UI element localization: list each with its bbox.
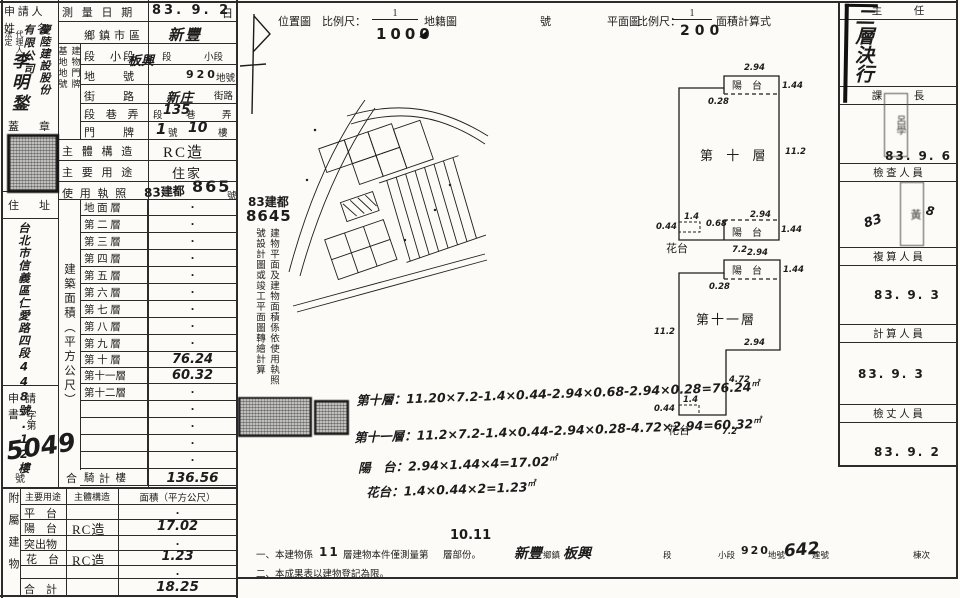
dim-label: 11.2 — [654, 327, 675, 337]
applicant-seal-stamp — [7, 134, 59, 193]
table-row: 第 九 層· — [80, 335, 237, 352]
dim-label: 2.94 — [750, 210, 771, 220]
legal-label: 法定 — [3, 30, 14, 54]
scale-label: 比例尺： — [322, 13, 366, 29]
base-land-label: 基地地號 — [57, 46, 70, 90]
grid-line — [2, 218, 58, 219]
dim-label: 1.4 — [683, 395, 698, 405]
table-row: 第十一層60.32 — [80, 368, 237, 384]
attached-structure-header: 主體構造 — [66, 489, 118, 504]
door-no-suffix: 號 — [168, 125, 178, 139]
inspector-date-scribble: 8 — [925, 203, 936, 218]
table-row: 第 二 層· — [80, 216, 237, 233]
subsection-suffix: 小段 — [204, 49, 223, 63]
floor-value: · — [148, 435, 237, 451]
floor-label: 第十二層 — [80, 384, 148, 400]
balcony-label: 陽 台 — [732, 79, 762, 92]
note1-land-no: 920 — [741, 544, 770, 557]
calc-line-balcony: 陽 台：2.94×1.44×4=17.02㎡ — [358, 451, 558, 477]
floor-value: · — [148, 452, 237, 468]
floor-label — [80, 452, 148, 468]
note1-prefix: 一、本建物係 — [256, 547, 313, 561]
note1-building-label: 建號 — [812, 549, 829, 561]
dim-label: 11.2 — [785, 147, 806, 157]
use-label: 主 要 用 途 — [62, 164, 135, 180]
attached-total-value: 18.25 — [118, 579, 237, 595]
address-label-char: 住 — [8, 197, 19, 213]
floor-label: 第十一層 — [80, 368, 148, 383]
note1-section-label: 段 — [663, 549, 672, 561]
flowerbed-label: 花台 — [668, 423, 690, 437]
dim-label: 2.94 — [744, 338, 765, 348]
table-row: 地 面 層· — [80, 199, 237, 216]
north-arrow-icon — [240, 8, 274, 118]
structure-value: RC造 — [163, 141, 204, 162]
dim-label: 2.94 — [747, 248, 768, 258]
dim-label: 4.72 — [728, 375, 750, 385]
permit-note-col2: 號設計圖或竣工平面圖轉繪計算 — [252, 228, 266, 386]
floor-label: 第 六 層 — [80, 284, 148, 300]
plan-map-label: 平面圖 — [607, 13, 640, 29]
office-seal-stamp — [238, 397, 312, 437]
approver-title-rechecker: 複 算 人 員 — [840, 247, 956, 266]
attached-building-label: 附屬建物 — [5, 492, 21, 594]
floor-label: 地 面 層 — [80, 199, 148, 215]
grid-line — [58, 21, 237, 22]
table-row: · — [80, 452, 237, 469]
floor-plan-title: 第 十 層 — [700, 148, 771, 163]
street-suffix: 街路 — [214, 88, 233, 102]
company-name-col1: 慶陸建設股份 — [36, 24, 52, 96]
sign-space: 呂學 83. 9. 6 — [840, 105, 956, 163]
sqm-unit: ㎡ — [527, 479, 535, 488]
table-row: 第十二層· — [80, 384, 237, 401]
floor-label: 第 五 層 — [80, 267, 148, 283]
floor-value: · — [148, 301, 237, 317]
balcony-label: 陽 台 — [732, 264, 762, 277]
attached-row-use: 突出物 — [24, 536, 57, 552]
table-row: 第 五 層· — [80, 267, 237, 284]
note2-text: 二、本成果表以建物登記為限。 — [256, 566, 389, 580]
attached-row-structure: RC造 — [72, 550, 105, 569]
address-label: 住 址 — [8, 197, 50, 213]
approval-handwritten-note: 二層決行 — [843, 4, 878, 104]
scale-numerator: 1 — [372, 8, 418, 20]
permit-note-text: 建物平面及建物面積係依使用執照 號設計圖或竣工平面圖轉繪計算 — [252, 228, 280, 386]
permit-note-number: 8645 — [246, 207, 292, 225]
sqm-unit: ㎡ — [549, 453, 557, 462]
floor-label: 第 四 層 — [80, 250, 148, 266]
floor-label: 第 二 層 — [80, 216, 148, 232]
floor-label — [80, 435, 148, 451]
approver-title-inspector: 檢 查 人 員 — [840, 163, 956, 182]
total-label: 合 計 — [58, 470, 148, 486]
dim-label: 0.28 — [709, 282, 730, 292]
permit-note-col1: 建物平面及建物面積係依使用執照 — [266, 228, 280, 386]
street-label: 街 路 — [84, 88, 136, 104]
note1-mid: 層建物本件僅測量第 — [343, 547, 429, 561]
dim-label: 1.44 — [782, 81, 803, 91]
building-door-label: 建物門牌 — [70, 46, 83, 90]
town-label: 鄉鎮市區 — [84, 27, 144, 43]
measured-floors-handwritten: 10.11 — [450, 528, 491, 543]
cadastre-no-label: 號 — [540, 13, 551, 29]
note1-unit-label: 棟次 — [913, 549, 930, 561]
applicant-address: 台北市信義區仁愛路四段448號.12樓 — [16, 222, 32, 382]
floor-label: 第 九 層 — [80, 335, 148, 351]
floor-label — [80, 418, 148, 434]
grid-line — [66, 489, 67, 596]
balcony-area-value: 17.02 — [118, 519, 237, 534]
seal-label: 蓋 章 — [8, 118, 50, 134]
attached-row-structure: RC造 — [72, 519, 105, 538]
door-number: 1 — [156, 120, 166, 138]
balcony-label: 陽 台 — [732, 226, 762, 239]
section-suffix: 段 — [162, 49, 172, 63]
seal-label-char: 章 — [39, 118, 50, 134]
approver-title-surveyor: 檢 丈 人 員 — [840, 404, 956, 423]
table-row: 第 六 層· — [80, 284, 237, 301]
calculator-date: 83. 9. 3 — [858, 367, 925, 381]
dim-label: 2.94 — [744, 63, 765, 73]
floor-value: · — [148, 384, 237, 400]
floor-value: · — [148, 250, 237, 266]
floor-area-table: 地 面 層· 第 二 層· 第 三 層· 第 四 層· 第 五 層· 第 六 層… — [80, 199, 237, 470]
docno-suffix: 號 — [15, 470, 25, 485]
table-row: 第 四 層· — [80, 250, 237, 267]
note1-section-value: 板興 — [563, 543, 591, 563]
dim-label: 0.44 — [654, 404, 675, 414]
inspector-date-scribble: 83 — [862, 212, 884, 232]
floor-value: · — [148, 233, 237, 249]
attached-use-header: 主要用途 — [20, 489, 66, 504]
floor-value: · — [148, 284, 237, 300]
table-row: · — [80, 401, 237, 418]
sign-space: 83. 9. 3 — [840, 266, 956, 324]
floor-number: 10 — [188, 120, 207, 136]
floor-value: · — [148, 418, 237, 434]
lane-suffix: 巷 — [186, 107, 196, 121]
table-row: 第 十 層76.24 — [80, 352, 237, 368]
chief-date: 83. 9. 6 — [885, 149, 952, 163]
dim-label: 0.44 — [656, 222, 677, 232]
base-building-col: 基地地號 建物門牌 — [60, 46, 79, 90]
dim-label: 1.4 — [684, 212, 699, 222]
attached-row-use: 花 台 — [26, 551, 59, 567]
dim-label: 7.2 — [722, 427, 737, 437]
floor-label: 第 十 層 — [80, 352, 148, 367]
floor-label: 第 七 層 — [80, 301, 148, 317]
sign-space: 83. 9. 2 — [840, 423, 956, 475]
floor-plan-title: 第十一層 — [696, 312, 756, 327]
alley-suffix: 弄 — [222, 107, 232, 121]
town-value: 新豐 — [168, 24, 202, 45]
permit-number: 865 — [192, 177, 231, 196]
floor-11-area: 60.32 — [148, 368, 237, 383]
flowerbed-area-value: 1.23 — [118, 549, 237, 564]
grid-line — [80, 64, 237, 65]
applicant-name: 李明鍫 — [6, 52, 31, 115]
door-label: 門 牌 — [84, 124, 136, 140]
docno-prefix: 字第 — [22, 410, 37, 430]
sign-space: 黃 83 8 — [840, 182, 956, 247]
survey-date-label: 測 量 日 期 — [62, 4, 144, 20]
dim-label: 1.44 — [781, 225, 802, 235]
floor-suffix: 樓 — [218, 125, 228, 139]
dim-label: 0.28 — [708, 97, 729, 107]
floor-plan-11f: 2.94 1.44 0.28 陽 台 第十一層 11.2 2.94 4.72 1… — [640, 246, 810, 446]
note1-town-value: 新豐 — [514, 543, 542, 563]
floor-10-area: 76.24 — [148, 352, 237, 367]
survey-result-form: 申 請 人 姓 名 法定 代理人 慶陸建設股份 有限公司 李明鍫 蓋 章 住 址… — [0, 0, 960, 598]
cadastral-sketch — [285, 90, 490, 318]
table-row: 第 八 層· — [80, 318, 237, 335]
floor-value: · — [148, 335, 237, 351]
floor-label: 第 三 層 — [80, 233, 148, 249]
note1-town-label: 鄉鎮 — [543, 549, 560, 561]
inspector-name-stamp: 黃 — [900, 182, 924, 246]
floor-total-row: 合 計 136.56 — [58, 470, 237, 486]
floor-value: · — [148, 216, 237, 232]
location-map-label: 位置圖 — [278, 13, 311, 29]
scale-numerator: 1 — [672, 8, 712, 20]
dim-label: 1.44 — [783, 265, 804, 275]
border-right — [956, 0, 958, 578]
note1-subsection-label: 小段 — [718, 549, 735, 561]
note1-total-floors: 11 — [319, 545, 340, 559]
table-row: 第 三 層· — [80, 233, 237, 250]
table-row: · — [80, 435, 237, 452]
floor-value: · — [148, 318, 237, 334]
calc-text: 花台：1.4×0.44×2=1.23 — [366, 479, 528, 500]
address-label-char: 址 — [39, 197, 50, 213]
section-value: 板興 — [128, 50, 154, 69]
calc-text: 陽 台：2.94×1.44×4=17.02 — [358, 454, 550, 476]
calc-line-flowerbed: 花台：1.4×0.44×2=1.23㎡ — [366, 476, 536, 501]
grid-line — [58, 43, 237, 44]
floor-plan-10f: 2.94 1.44 0.28 陽 台 第 十 層 11.2 0.68 2.94 … — [640, 58, 810, 260]
attached-total-label: 合 計 — [24, 581, 57, 597]
rechecker-date: 83. 9. 3 — [874, 288, 941, 302]
seal-label-char: 蓋 — [8, 118, 19, 134]
lane-seg-label: 段 — [153, 107, 163, 121]
sign-space: 83. 9. 3 — [840, 343, 956, 404]
approver-title-calculator: 計 算 人 員 — [840, 324, 956, 343]
cadastre-map-label: 地籍圖 — [424, 13, 457, 29]
floor-value: · — [148, 267, 237, 283]
survey-date-day: 日 — [222, 5, 233, 21]
land-no-value: 920 — [186, 68, 218, 81]
grid-line — [80, 84, 237, 85]
land-no-suffix: 地號 — [216, 70, 235, 84]
floor-value: · — [148, 401, 237, 417]
structure-label: 主 體 構 造 — [62, 143, 135, 159]
survey-date-value: 83. 9. 2 — [152, 3, 231, 18]
land-no-label: 地 號 — [84, 68, 136, 84]
note1-suffix: 層部份。 — [443, 547, 481, 561]
table-row: 第 七 層· — [80, 301, 237, 318]
table-row: · — [80, 418, 237, 435]
grid-line — [58, 160, 237, 161]
chief-name-stamp: 呂學 — [884, 93, 908, 157]
attached-area-header: 面積（平方公尺） — [118, 489, 237, 504]
floor-value: · — [148, 199, 237, 215]
dim-label: 0.68 — [706, 219, 727, 229]
border-left — [1, 0, 3, 598]
area-calc-label: 面積計算式 — [716, 13, 771, 29]
surveyor-date: 83. 9. 2 — [874, 445, 941, 459]
floor-label — [80, 401, 148, 417]
floor-label: 第 八 層 — [80, 318, 148, 334]
total-area-value: 136.56 — [148, 470, 237, 486]
attached-row-use: 平 台 — [24, 505, 57, 521]
lane-label: 段 巷 弄 — [84, 106, 143, 122]
applicant-title: 申 請 人 — [4, 3, 43, 19]
border-top — [0, 1, 958, 3]
office-seal-stamp-small — [314, 400, 349, 435]
floor-area-column-label: 建築面積（平方公尺） — [58, 202, 80, 468]
note1-land-label: 地號 — [768, 549, 785, 561]
attached-row-use: 陽 台 — [24, 520, 57, 536]
